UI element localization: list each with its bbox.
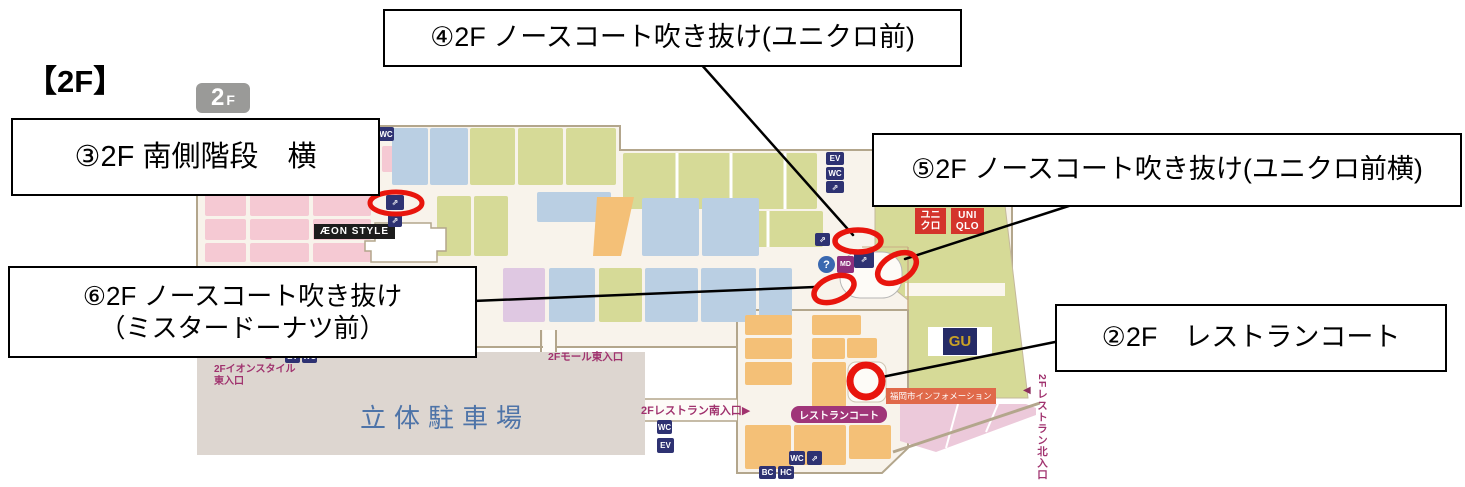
callout-box-2: ②2F レストランコート <box>1055 304 1447 372</box>
leader-line-2 <box>882 342 1055 377</box>
callout-6-label-line2: （ミスタードーナツ前） <box>99 312 385 345</box>
leader-line-4 <box>700 63 853 235</box>
marker-ellipse-6 <box>810 270 858 308</box>
callout-box-6: ⑥2F ノースコート吹き抜け （ミスタードーナツ前） <box>8 266 477 358</box>
callout-box-4: ④2F ノースコート吹き抜け(ユニクロ前) <box>383 9 962 67</box>
callout-5-label: ⑤2F ノースコート吹き抜け(ユニクロ前横) <box>911 153 1423 187</box>
leader-line-5 <box>905 203 1078 259</box>
callout-6-label-line1: ⑥2F ノースコート吹き抜け <box>83 280 403 313</box>
marker-ellipse-4 <box>835 230 881 252</box>
floor-map-page: 【2F】 2 F ④2F ノースコート吹き抜け(ユニクロ前) ③2F 南側階段 … <box>0 0 1465 487</box>
marker-ellipse-5 <box>872 246 921 290</box>
callout-box-5: ⑤2F ノースコート吹き抜け(ユニクロ前横) <box>872 133 1462 207</box>
annotation-overlay <box>0 0 1465 487</box>
callout-2-label: ②2F レストランコート <box>1102 321 1401 355</box>
leader-line-6 <box>473 287 815 301</box>
callout-4-label: ④2F ノースコート吹き抜け(ユニクロ前) <box>430 21 915 55</box>
marker-circle-2 <box>850 365 882 397</box>
callout-3-label: ③2F 南側階段 横 <box>75 139 317 175</box>
callout-box-3: ③2F 南側階段 横 <box>11 118 380 196</box>
